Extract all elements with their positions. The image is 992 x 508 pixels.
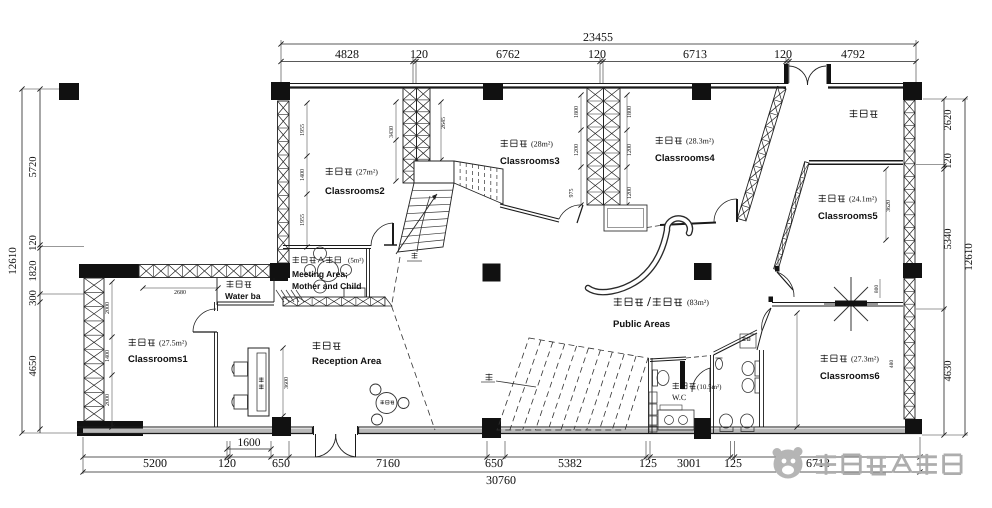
svg-text:Classrooms4: Classrooms4 <box>655 153 715 164</box>
svg-text:(27.3m²): (27.3m²) <box>851 355 879 364</box>
svg-text:800: 800 <box>874 285 880 294</box>
svg-text:Classrooms6: Classrooms6 <box>820 371 880 382</box>
svg-text:120: 120 <box>943 153 954 169</box>
svg-text:Mother and Child: Mother and Child <box>292 281 361 291</box>
svg-text:7160: 7160 <box>376 456 400 470</box>
svg-text:120: 120 <box>28 235 39 251</box>
svg-text:2645: 2645 <box>441 117 447 129</box>
svg-text:6762: 6762 <box>496 47 520 61</box>
svg-text:5200: 5200 <box>143 456 167 470</box>
svg-text:Water ba: Water ba <box>225 291 261 301</box>
svg-text:1200: 1200 <box>574 144 580 156</box>
svg-text:1955: 1955 <box>300 124 306 136</box>
svg-text:12610: 12610 <box>963 243 975 271</box>
svg-text:1800: 1800 <box>574 106 580 118</box>
svg-text:1955: 1955 <box>300 214 306 226</box>
svg-text:2620: 2620 <box>943 110 954 131</box>
svg-text:125: 125 <box>724 456 742 470</box>
svg-text:4828: 4828 <box>335 47 359 61</box>
svg-text:1820: 1820 <box>28 261 39 282</box>
svg-text:3620: 3620 <box>886 200 892 212</box>
svg-text:2000: 2000 <box>105 302 111 314</box>
svg-text:(28m²): (28m²) <box>531 140 553 149</box>
svg-text:1600: 1600 <box>238 437 261 449</box>
svg-text:4792: 4792 <box>841 47 865 61</box>
svg-text:1400: 1400 <box>105 350 111 362</box>
svg-text:300: 300 <box>28 290 39 306</box>
svg-text:6713: 6713 <box>683 47 707 61</box>
svg-text:2000: 2000 <box>105 394 111 406</box>
svg-text:23455: 23455 <box>583 30 613 44</box>
svg-text:Reception Area: Reception Area <box>312 356 382 367</box>
svg-text:Classrooms1: Classrooms1 <box>128 354 188 365</box>
svg-text:Classrooms2: Classrooms2 <box>325 186 385 197</box>
svg-text:1200: 1200 <box>627 187 633 199</box>
svg-text:480: 480 <box>889 360 895 369</box>
svg-text:1800: 1800 <box>627 106 633 118</box>
svg-text:4630: 4630 <box>943 361 954 382</box>
svg-text:5382: 5382 <box>558 456 582 470</box>
svg-text:(28.3m²): (28.3m²) <box>686 137 714 146</box>
svg-text:(27m²): (27m²) <box>356 168 378 177</box>
svg-text:(27.5m²): (27.5m²) <box>159 339 187 348</box>
svg-text:2680: 2680 <box>174 290 186 296</box>
svg-text:Meeting Area;: Meeting Area; <box>292 269 348 279</box>
svg-text:4650: 4650 <box>28 356 39 377</box>
svg-text:(10.5m²): (10.5m²) <box>697 383 722 391</box>
svg-text:Classrooms3: Classrooms3 <box>500 156 560 167</box>
svg-text:(24.1m²): (24.1m²) <box>849 195 877 204</box>
svg-text:650: 650 <box>272 456 290 470</box>
svg-text:3001: 3001 <box>677 456 701 470</box>
svg-text:975: 975 <box>569 189 575 198</box>
svg-text:3600: 3600 <box>284 377 290 389</box>
svg-text:Classrooms5: Classrooms5 <box>818 211 878 222</box>
svg-text:(83m²): (83m²) <box>687 298 709 307</box>
svg-text:3430: 3430 <box>389 126 395 138</box>
svg-text:1400: 1400 <box>300 169 306 181</box>
svg-text:(5m²): (5m²) <box>348 257 364 265</box>
svg-text:12610: 12610 <box>7 247 19 275</box>
svg-text:30760: 30760 <box>486 473 516 487</box>
svg-text:5340: 5340 <box>943 229 954 250</box>
svg-text:125: 125 <box>639 456 657 470</box>
svg-text:650: 650 <box>485 456 503 470</box>
svg-text:5720: 5720 <box>28 157 39 178</box>
svg-text:W.C: W.C <box>672 393 686 402</box>
svg-text:1200: 1200 <box>627 144 633 156</box>
svg-text:Public Areas: Public Areas <box>613 319 670 330</box>
